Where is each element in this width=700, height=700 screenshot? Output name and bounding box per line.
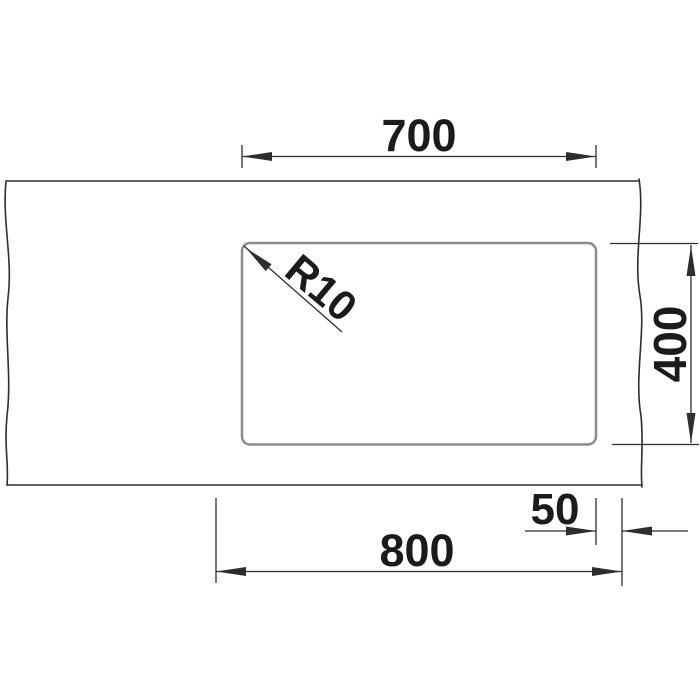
dim-400-arrow-up — [687, 246, 696, 276]
dim-700-arrow-left — [242, 152, 272, 161]
dim-50-label: 50 — [531, 485, 580, 534]
technical-drawing-canvas: 700 400 R10 50 — [0, 0, 700, 700]
dim-400-label: 400 — [644, 306, 696, 383]
dim-50-arrow-right — [622, 527, 652, 536]
sink-cutout-drawing: 700 400 R10 50 — [0, 0, 700, 700]
dim-700: 700 — [242, 110, 596, 168]
dim-800-arrow-left — [216, 567, 246, 576]
radius-label: R10 — [277, 245, 366, 331]
dim-800-label: 800 — [379, 525, 454, 576]
dim-700-arrow-right — [566, 152, 596, 161]
dim-400: 400 — [610, 244, 699, 445]
break-line-left — [5, 181, 9, 485]
dim-700-label: 700 — [381, 110, 456, 161]
dim-400-arrow-down — [687, 413, 696, 443]
break-line-right — [638, 179, 642, 487]
countertop-outline — [5, 179, 642, 487]
radius-callout: R10 — [243, 245, 366, 332]
dim-50: 50 — [525, 485, 688, 545]
dim-800-arrow-right — [592, 567, 622, 576]
